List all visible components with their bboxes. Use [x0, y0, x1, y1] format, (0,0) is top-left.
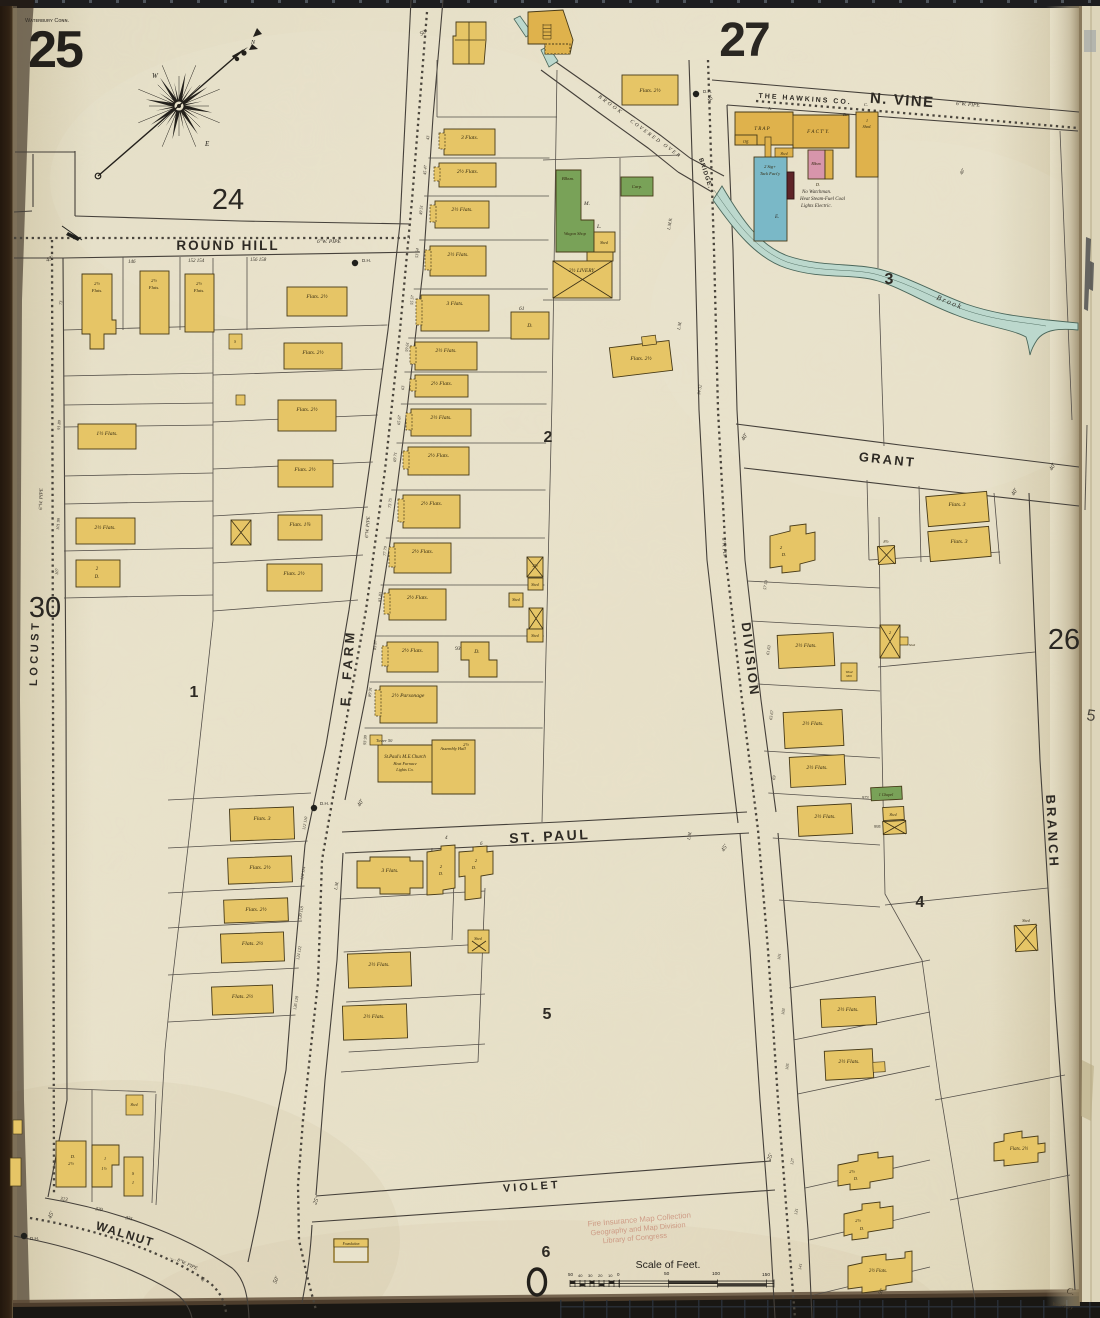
svg-text:85 87: 85 87	[372, 639, 378, 650]
svg-text:Flats.: Flats.	[148, 285, 160, 290]
svg-text:24: 24	[212, 184, 244, 216]
svg-text:2½ Flats.: 2½ Flats.	[363, 1013, 384, 1020]
svg-text:Flats. 2½: Flats. 2½	[248, 864, 271, 871]
svg-text:973: 973	[862, 795, 869, 800]
svg-text:Flats. 3: Flats. 3	[947, 502, 965, 508]
svg-text:3: 3	[885, 271, 894, 288]
svg-text:S: S	[234, 340, 236, 344]
svg-text:150: 150	[762, 1272, 770, 1278]
svg-text:2 Stg+: 2 Stg+	[764, 164, 776, 169]
svg-text:Flats. 3: Flats. 3	[252, 816, 270, 822]
svg-text:3 Flats.: 3 Flats.	[445, 301, 463, 307]
svg-text:D.: D.	[859, 1226, 864, 1231]
svg-text:Shed: Shed	[890, 813, 897, 817]
svg-text:Flats. 2½: Flats. 2½	[301, 349, 324, 356]
svg-text:D.H.: D.H.	[703, 89, 712, 94]
svg-text:2½: 2½	[849, 1169, 855, 1174]
svg-text:Flats. 2½: Flats. 2½	[629, 355, 652, 362]
svg-text:2½: 2½	[68, 1161, 74, 1166]
svg-text:2½ Flats.: 2½ Flats.	[802, 720, 823, 727]
svg-text:2½ Flats.: 2½ Flats.	[435, 347, 456, 354]
svg-text:Lights Co.: Lights Co.	[395, 767, 413, 772]
svg-text:2½: 2½	[463, 742, 469, 747]
svg-text:6"W. PIPE: 6"W. PIPE	[39, 488, 45, 510]
svg-text:2½ Flats.: 2½ Flats.	[368, 961, 389, 968]
svg-text:1½ Flats.: 1½ Flats.	[96, 430, 117, 437]
svg-text:D.: D.	[781, 552, 786, 557]
svg-text:D.H.: D.H.	[362, 258, 371, 263]
svg-text:93 99: 93 99	[362, 734, 368, 745]
svg-text:3 Flats.: 3 Flats.	[380, 868, 398, 874]
svg-text:Flats. 2½: Flats. 2½	[295, 406, 318, 413]
svg-text:Mill: Mill	[845, 674, 852, 678]
svg-text:1 Chapel: 1 Chapel	[879, 792, 894, 797]
svg-text:73 75: 73 75	[387, 497, 393, 508]
svg-text:Foundation: Foundation	[342, 1242, 360, 1246]
svg-text:81 83: 81 83	[377, 592, 383, 602]
svg-text:65 67: 65 67	[396, 414, 402, 425]
svg-text:Flats. 1¾: Flats. 1¾	[288, 522, 311, 528]
svg-text:Shed: Shed	[512, 598, 519, 602]
svg-text:Flats. 2½: Flats. 2½	[293, 466, 316, 473]
svg-text:Tack Fact'y: Tack Fact'y	[760, 171, 780, 176]
svg-text:2½ Flats.: 2½ Flats.	[94, 524, 115, 531]
svg-text:2½: 2½	[855, 1218, 861, 1223]
svg-text:2½ Flats.: 2½ Flats.	[814, 813, 835, 820]
svg-text:Wagon Shop: Wagon Shop	[564, 231, 587, 236]
svg-text:100: 100	[712, 1271, 720, 1277]
svg-text:20: 20	[598, 1273, 603, 1278]
svg-text:995: 995	[874, 824, 881, 829]
svg-text:26: 26	[1048, 624, 1080, 656]
svg-text:Shed.: Shed.	[863, 124, 872, 129]
svg-text:1: 1	[866, 118, 868, 123]
svg-text:30: 30	[588, 1273, 593, 1278]
svg-text:55 57: 55 57	[409, 294, 415, 305]
svg-text:C.: C.	[864, 102, 868, 107]
svg-text:Off.: Off.	[743, 139, 749, 144]
svg-text:D.: D.	[94, 575, 100, 580]
svg-text:1½: 1½	[101, 1166, 107, 1171]
svg-text:A.: A.	[767, 106, 772, 111]
svg-text:2½: 2½	[196, 281, 202, 286]
svg-text:2½ Flats.: 2½ Flats.	[428, 452, 449, 459]
svg-text:Tower 50: Tower 50	[376, 738, 393, 743]
svg-text:77 79: 77 79	[382, 545, 388, 556]
svg-text:Wᴀᴛᴇʀʙᴜʀʏ Cᴏɴɴ.: Wᴀᴛᴇʀʙᴜʀʏ Cᴏɴɴ.	[25, 18, 70, 24]
svg-text:2½ Flats.: 2½ Flats.	[431, 380, 452, 387]
svg-text:2½ Flats.: 2½ Flats.	[451, 206, 472, 213]
svg-text:2½ Flats.: 2½ Flats.	[806, 764, 827, 771]
svg-text:5: 5	[543, 1006, 552, 1023]
svg-text:50: 50	[664, 1271, 670, 1277]
svg-text:M.: M.	[583, 201, 590, 207]
svg-text:Flats. 2½: Flats. 2½	[305, 293, 328, 300]
svg-text:Shed: Shed	[474, 937, 481, 941]
svg-text:Scale of Feet.: Scale of Feet.	[636, 1259, 701, 1271]
svg-text:2½ Flats.: 2½ Flats.	[412, 548, 433, 555]
svg-text:D.: D.	[471, 865, 476, 870]
svg-text:2½ Flats.: 2½ Flats.	[430, 414, 451, 421]
svg-text:63: 63	[400, 385, 405, 390]
svg-text:B.: B.	[843, 112, 847, 117]
svg-text:25: 25	[28, 21, 83, 79]
svg-text:Carp.: Carp.	[632, 184, 643, 189]
svg-text:Flats.: Flats.	[91, 288, 103, 293]
svg-text:2½ Flats.: 2½ Flats.	[457, 168, 478, 175]
svg-text:27: 27	[719, 14, 769, 67]
svg-text:40: 40	[578, 1273, 583, 1278]
svg-text:8½: 8½	[884, 539, 889, 544]
svg-text:6: 6	[542, 1244, 551, 1261]
svg-text:2½ Flats.: 2½ Flats.	[837, 1006, 858, 1013]
svg-text:3 Flats.: 3 Flats.	[460, 135, 478, 141]
svg-text:T R A P: T R A P	[754, 127, 769, 132]
svg-text:Flats.: Flats.	[193, 288, 205, 293]
svg-text:Flats. 2½: Flats. 2½	[231, 993, 254, 1000]
svg-text:D.: D.	[853, 1176, 858, 1181]
svg-text:1: 1	[190, 684, 199, 701]
svg-text:2½: 2½	[94, 281, 100, 286]
svg-text:Flats. 2½: Flats. 2½	[638, 87, 661, 94]
svg-text:59 61: 59 61	[404, 342, 410, 352]
svg-text:50: 50	[568, 1272, 574, 1277]
svg-text:61: 61	[519, 306, 525, 312]
svg-text:4: 4	[916, 894, 925, 911]
svg-text:D.: D.	[473, 649, 479, 655]
svg-text:89 91: 89 91	[367, 687, 373, 697]
svg-text:Flats. 3: Flats. 3	[949, 539, 967, 545]
svg-text:D.: D.	[526, 323, 532, 329]
svg-text:30: 30	[29, 592, 61, 624]
svg-text:6"W. PIPE: 6"W. PIPE	[317, 239, 341, 245]
svg-text:69 71: 69 71	[392, 452, 398, 462]
svg-text:Shed: Shed	[1022, 919, 1029, 923]
svg-text:Heat Steam-Fuel Coal: Heat Steam-Fuel Coal	[799, 197, 846, 202]
svg-text:E.: E.	[774, 215, 779, 220]
svg-text:91 89: 91 89	[56, 419, 62, 430]
svg-text:D.H.: D.H.	[320, 801, 329, 806]
svg-text:156 158: 156 158	[250, 258, 267, 263]
svg-text:49 51: 49 51	[418, 205, 424, 215]
svg-text:Shed: Shed	[531, 583, 538, 587]
svg-text:10: 10	[608, 1273, 613, 1278]
svg-text:D.H.: D.H.	[30, 1236, 39, 1241]
svg-text:Heat Furnace: Heat Furnace	[392, 761, 417, 766]
svg-text:Shed: Shed	[531, 634, 538, 638]
svg-text:L.: L.	[596, 224, 601, 230]
svg-text:Shed: Shed	[909, 643, 916, 647]
svg-text:2½ Flats.: 2½ Flats.	[869, 1269, 887, 1274]
svg-text:73: 73	[58, 300, 63, 305]
svg-text:No Watchman.: No Watchman.	[801, 190, 831, 195]
svg-text:93: 93	[455, 646, 461, 652]
svg-text:Flats. 2½: Flats. 2½	[1009, 1147, 1029, 1152]
svg-text:2½ Flats.: 2½ Flats.	[421, 500, 442, 507]
svg-text:2½: 2½	[532, 563, 538, 568]
svg-text:2½ Flats.: 2½ Flats.	[795, 642, 816, 649]
svg-text:Shed: Shed	[600, 240, 609, 245]
svg-text:Flats. 2½: Flats. 2½	[244, 906, 267, 913]
svg-text:Flats. 2½: Flats. 2½	[282, 570, 305, 577]
svg-text:Blksm: Blksm	[811, 162, 821, 166]
svg-text:2½ Flats.: 2½ Flats.	[838, 1058, 859, 1065]
svg-text:2½ Parsonage: 2½ Parsonage	[392, 692, 425, 699]
svg-text:2½ Flats.: 2½ Flats.	[447, 251, 468, 258]
svg-text:E: E	[204, 140, 210, 148]
svg-text:D.: D.	[70, 1154, 75, 1159]
svg-text:146: 146	[128, 260, 136, 265]
svg-text:1: 1	[104, 1156, 106, 1161]
svg-text:2½: 2½	[151, 278, 157, 283]
svg-text:D.: D.	[438, 871, 443, 876]
svg-text:F A C T' Y.: F A C T' Y.	[806, 130, 829, 135]
svg-text:LOCUST: LOCUST	[28, 620, 42, 687]
svg-text:Lights Electric.: Lights Electric.	[800, 204, 832, 209]
svg-text:Blksm.: Blksm.	[562, 176, 574, 181]
svg-text:Flats. 2½: Flats. 2½	[241, 940, 264, 947]
svg-text:1: 1	[132, 1180, 134, 1185]
svg-text:45 47: 45 47	[422, 164, 428, 175]
svg-text:ROUND HILL: ROUND HILL	[176, 238, 279, 253]
svg-text:53 54: 53 54	[414, 247, 420, 258]
svg-text:43: 43	[425, 135, 430, 140]
svg-text:2: 2	[544, 429, 553, 446]
svg-text:2½ LIVERY.: 2½ LIVERY.	[569, 267, 596, 274]
svg-text:2½ Flats.: 2½ Flats.	[402, 647, 423, 654]
svg-text:Shed: Shed	[781, 152, 788, 156]
svg-text:2½ Flats.: 2½ Flats.	[407, 594, 428, 601]
svg-text:St.Paul's M.E.Church: St.Paul's M.E.Church	[384, 755, 426, 760]
svg-text:Shed: Shed	[131, 1103, 138, 1107]
svg-text:152 154: 152 154	[188, 259, 205, 264]
svg-text:D.: D.	[815, 182, 820, 187]
